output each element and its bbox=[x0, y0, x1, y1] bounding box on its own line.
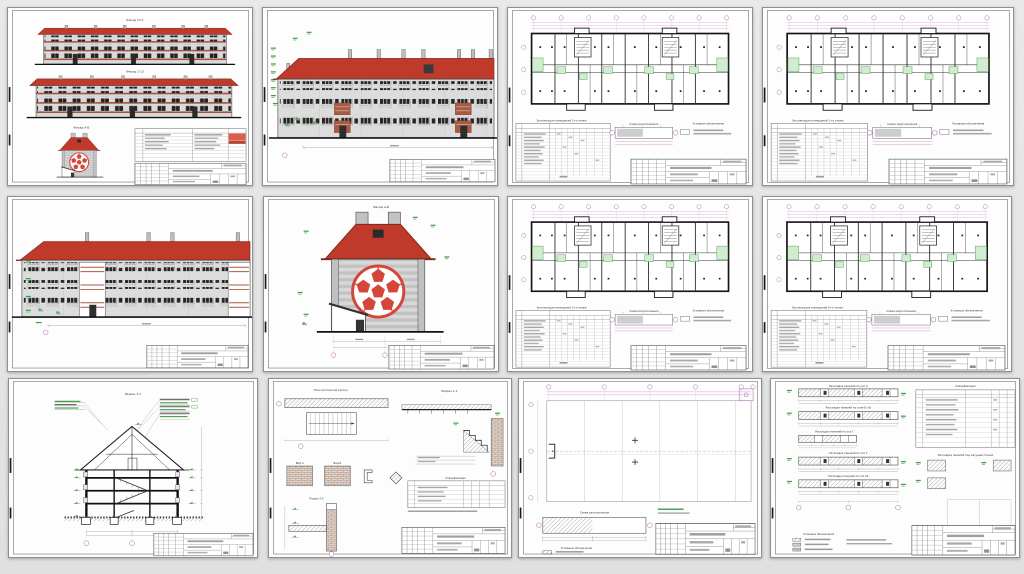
chimneys bbox=[85, 233, 239, 242]
legend-caption: Условные обозначения bbox=[561, 546, 593, 550]
axis-marker bbox=[282, 153, 287, 158]
strip2-caption: Раскладка панелей по осям Б и В bbox=[826, 406, 872, 410]
floor-plan-drawing bbox=[771, 16, 1007, 184]
detail-dims bbox=[948, 500, 1011, 526]
title-block bbox=[656, 523, 755, 554]
roof bbox=[273, 58, 494, 79]
legend-text-line bbox=[556, 551, 584, 552]
stair-plan-caption: План лестничной клетки bbox=[314, 388, 348, 392]
gray-note bbox=[658, 513, 690, 514]
title-block bbox=[390, 159, 495, 182]
sheet-floor-plan-1: Экспликация помещений 1-го этажа Схема р… bbox=[507, 7, 753, 186]
title-block bbox=[154, 533, 253, 556]
strip5-caption: Раскладка панелей по оси 14 bbox=[828, 474, 868, 478]
axis-marker bbox=[298, 444, 303, 449]
note-line-2 bbox=[846, 543, 892, 544]
strip1-dims bbox=[799, 400, 898, 404]
floor-plan-drawing bbox=[771, 205, 1005, 370]
schema-caption: Схема расположения bbox=[629, 122, 659, 126]
strip3-dims bbox=[799, 444, 857, 448]
axis-marker bbox=[846, 505, 851, 510]
diamond-detail bbox=[390, 472, 402, 484]
sheet-floor-plan-2: Экспликация помещений 1-го этажа Схема р… bbox=[762, 7, 1014, 186]
sheet-facade-gable: Фасад А-Б bbox=[263, 196, 499, 372]
detail-section-caption: Разрез 1-1 bbox=[441, 389, 457, 393]
plan-outline bbox=[547, 401, 751, 502]
vertical-dim-chain bbox=[200, 426, 202, 517]
spec-caption: Спецификация bbox=[445, 476, 466, 480]
margin-stamps bbox=[764, 88, 766, 147]
green-note bbox=[36, 322, 42, 323]
view-b-caption: Вид Б bbox=[334, 461, 342, 465]
entrance-door bbox=[339, 126, 346, 138]
axis-marker bbox=[529, 449, 533, 453]
title-block bbox=[402, 527, 505, 553]
sheet-floor-plan-4: Экспликация помещений 3-го этажа Схема р… bbox=[762, 196, 1012, 372]
facade-caption-1: Фасад 13-1 bbox=[126, 18, 144, 22]
strip1-caption: Раскладка панелей по оси А bbox=[829, 384, 868, 388]
margin-stamps bbox=[9, 87, 11, 145]
gable-elevation bbox=[317, 212, 444, 332]
facade-caption-2: Фасад 1-13 bbox=[126, 69, 144, 73]
legend-caption: Условные обозначения bbox=[693, 308, 725, 312]
wall-section-detail bbox=[285, 504, 337, 557]
entrance-door bbox=[460, 126, 467, 138]
strip3-caption: Раскладка панелей по оси Г bbox=[815, 429, 854, 433]
entrance-door bbox=[89, 305, 96, 317]
margin-stamps bbox=[264, 87, 266, 145]
axis-marker bbox=[529, 495, 533, 499]
panel-strip-2 bbox=[799, 412, 898, 420]
legend-rows bbox=[793, 538, 833, 551]
axis-marker bbox=[43, 330, 48, 335]
margin-stamps bbox=[265, 274, 267, 332]
schedule-caption: Экспликация помещений 1-го этажа bbox=[537, 118, 587, 122]
axis-marker bbox=[130, 541, 135, 546]
floor-plan-drawing bbox=[516, 205, 746, 370]
note-line bbox=[408, 511, 477, 512]
axis-marker bbox=[896, 505, 901, 510]
facade-1-13 bbox=[27, 76, 242, 118]
sheet-facades-overview: Фасад 13-1 Фасад 1-13 Фасад А-Б bbox=[7, 7, 253, 186]
sheet-panel-layout: Раскладка панелей по оси А Раскладка пан… bbox=[770, 378, 1020, 558]
panel-strip-3 bbox=[799, 435, 857, 442]
legend-caption: Условные обозначения bbox=[951, 308, 983, 312]
schema-caption: Схема расположения bbox=[886, 309, 916, 313]
axis-marker bbox=[491, 472, 496, 477]
drawing-board: Фасад 13-1 Фасад 1-13 Фасад А-Б bbox=[0, 0, 1024, 574]
title-block bbox=[912, 525, 1015, 555]
strip5-dims bbox=[799, 491, 898, 495]
finish-legend-table bbox=[135, 129, 246, 162]
view-a-caption: Вид А bbox=[296, 461, 304, 465]
stair-plan bbox=[285, 399, 388, 442]
section-body bbox=[83, 470, 179, 517]
legend-caption: Условные обозначения bbox=[803, 532, 835, 536]
schema-strip bbox=[536, 517, 652, 541]
margin-stamps bbox=[772, 458, 774, 518]
schema-caption: Схема расположения bbox=[580, 510, 610, 514]
red-swatch-dark bbox=[229, 141, 246, 144]
legend-caption: Условные обозначения bbox=[693, 121, 725, 125]
spec-table bbox=[916, 390, 1015, 447]
spec-table bbox=[408, 481, 505, 508]
small-details bbox=[916, 460, 1011, 489]
axis-marker bbox=[331, 353, 336, 358]
title-block bbox=[135, 163, 246, 184]
sheet-facade-fragment-1 bbox=[262, 7, 498, 186]
gable-view-small bbox=[57, 133, 104, 177]
facade-caption-3: Фасад А-Б bbox=[73, 126, 89, 130]
facade-13-1 bbox=[35, 25, 235, 64]
schedule-caption: Экспликация помещений 2-го этажа bbox=[537, 305, 587, 309]
green-note bbox=[658, 509, 684, 510]
roof-truss bbox=[74, 426, 189, 470]
strip2-dims bbox=[799, 422, 898, 426]
windows bbox=[24, 262, 248, 306]
axis-marker bbox=[529, 403, 533, 407]
floor-plan-drawing bbox=[516, 16, 746, 184]
margin-stamps bbox=[764, 275, 766, 333]
schedule-caption: Экспликация помещений 1-го этажа bbox=[792, 118, 844, 122]
margin-stamps bbox=[509, 88, 511, 147]
sheet-section: Разрез 1-1 bbox=[8, 378, 258, 558]
axis-marker bbox=[383, 353, 388, 358]
strip4-caption: Раскладка панелей по оси 1 bbox=[829, 451, 868, 455]
spec-caption: Спецификация bbox=[955, 384, 976, 388]
legend-swatch bbox=[543, 551, 552, 554]
panel-strip-5 bbox=[799, 480, 898, 488]
roof-dormer bbox=[424, 64, 434, 73]
axis-chain bbox=[799, 500, 898, 503]
axis-marker bbox=[277, 401, 282, 406]
gable-caption: Фасад А-Б bbox=[373, 205, 389, 209]
roof bbox=[16, 241, 250, 260]
callouts-left bbox=[55, 401, 109, 431]
title-block bbox=[147, 345, 248, 368]
sheet-details-stairs: План лестничной клетки Разрез 1-1 bbox=[268, 378, 512, 558]
axis-marker bbox=[84, 541, 89, 546]
panel-strip-1 bbox=[799, 389, 898, 397]
detail-caption: Раскладка панелей под несущей стеной bbox=[938, 453, 993, 457]
note-line-1 bbox=[846, 539, 886, 540]
entrance-section-detail bbox=[402, 405, 503, 466]
sheet-facade-fragment-2 bbox=[7, 196, 253, 372]
view-a-brick bbox=[287, 466, 313, 486]
sheet-framing-plan: Схема расположения Условные обозначения bbox=[518, 378, 762, 558]
red-swatch-light bbox=[229, 134, 246, 141]
section-caption: Разрез 1-1 bbox=[125, 392, 141, 396]
panel-strip-4 bbox=[799, 457, 898, 465]
axis-marker bbox=[796, 505, 801, 510]
schema-caption: Схема расположения bbox=[629, 309, 659, 313]
view-b-brick bbox=[325, 466, 351, 486]
section2-caption: Разрез 2-2 bbox=[310, 497, 324, 501]
margin-stamps bbox=[509, 275, 511, 333]
channel-detail bbox=[364, 470, 372, 483]
dimension-line bbox=[48, 323, 246, 327]
margin-stamps bbox=[9, 274, 11, 332]
margin-stamps bbox=[10, 458, 12, 518]
sheet-floor-plan-3: Экспликация помещений 2-го этажа Схема р… bbox=[507, 196, 753, 372]
margin-stamps bbox=[270, 458, 272, 518]
strip4-dims bbox=[799, 468, 898, 472]
schema-caption: Схема расположения bbox=[887, 122, 917, 126]
title-block bbox=[389, 345, 494, 369]
legend-caption: Условные обозначения bbox=[952, 121, 984, 125]
margin-stamps bbox=[520, 458, 522, 518]
dimension-line bbox=[303, 145, 493, 149]
schedule-caption: Экспликация помещений 3-го этажа bbox=[792, 305, 843, 309]
